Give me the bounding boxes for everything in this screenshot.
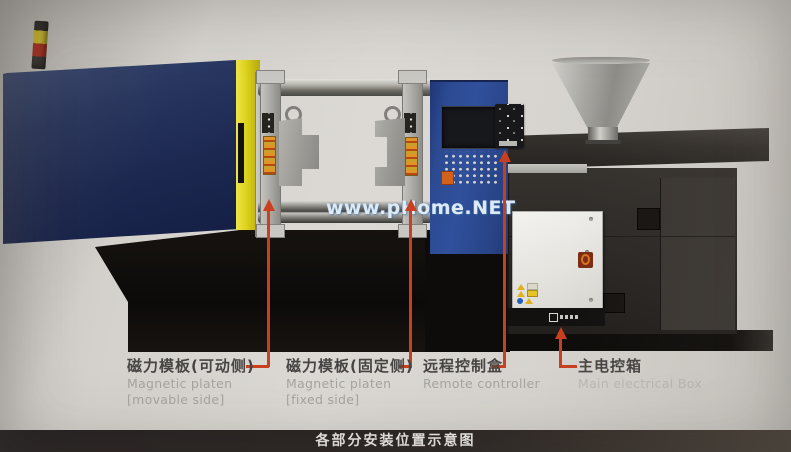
start-button [441,171,454,185]
movable-platen-foot [256,224,285,238]
screw-icon [589,298,593,302]
screw-icon [589,217,593,221]
callout-remote-controller: 远程控制盒 Remote controller [423,355,540,392]
panel-slot [238,123,244,183]
movable-platen-cap [256,70,285,84]
callout-fixed-platen: 磁力模板(固定侧) Magnetic platen [fixed side] [286,355,414,408]
callout-label-zh: 磁力模板(固定侧) [286,355,414,376]
callout-label-zh: 磁力模板(可动侧) [127,355,255,376]
warning-triangle-icon [517,284,525,290]
callout-line [559,365,577,368]
callout-label-zh: 远程控制盒 [423,355,540,376]
control-screen [441,106,500,149]
body-right-panel [660,178,735,330]
caption-bar: 各部分安装位置示意图 [0,430,791,452]
brand-logo-icon [549,313,558,322]
callout-line [503,160,506,367]
callout-line [559,337,562,368]
fixed-platen-nameplate [404,113,416,133]
callout-label-en: [fixed side] [286,392,414,408]
mandatory-sign-icon [517,298,523,304]
callout-label-zh: 主电控箱 [578,355,702,376]
fixed-platen-foot [398,224,427,238]
remote-controller-label [499,141,517,146]
mold-half-fixed [370,118,405,186]
signal-tower-light [31,21,48,70]
warning-label-cluster [517,283,538,304]
movable-platen-nameplate [262,113,274,133]
brand-sticker [578,252,593,268]
callout-main-electrical-box: 主电控箱 Main electrical Box [578,355,702,392]
callout-line [409,209,412,367]
brand-logo-text [560,315,580,319]
fixed-platen-cap [398,70,427,84]
callout-label-en: Magnetic platen [286,376,414,392]
warning-triangle-icon [517,291,525,297]
hopper-base [585,140,621,144]
mold-half-movable [279,118,319,186]
warning-triangle-icon [525,298,533,304]
callout-line [267,209,270,367]
watermark: www.pHome.NET [326,197,516,219]
callout-label-en: Magnetic platen [127,376,255,392]
clamping-unit-body [3,58,239,244]
movable-platen-warning-sticker [263,136,276,175]
caption-text: 各部分安装位置示意图 [316,433,476,449]
fixed-platen-warning-sticker [405,137,418,176]
callout-label-en: [movable side] [127,392,255,408]
machine-base-shadow-left [92,228,432,352]
callout-movable-platen: 磁力模板(可动侧) Magnetic platen [movable side] [127,355,255,408]
vent-grille [637,208,660,230]
hopper-funnel [552,58,650,129]
callout-label-en: Remote controller [423,376,540,392]
warning-chip [527,290,538,297]
installation-diagram: www.pHome.NET 磁力模板(可动侧) Magnetic platen … [0,0,791,452]
hopper-rim [552,57,650,64]
warning-chip [527,283,538,290]
vent-grille [603,293,625,313]
body-trim-strip [507,164,587,173]
callout-label-en: Main electrical Box [578,376,702,392]
